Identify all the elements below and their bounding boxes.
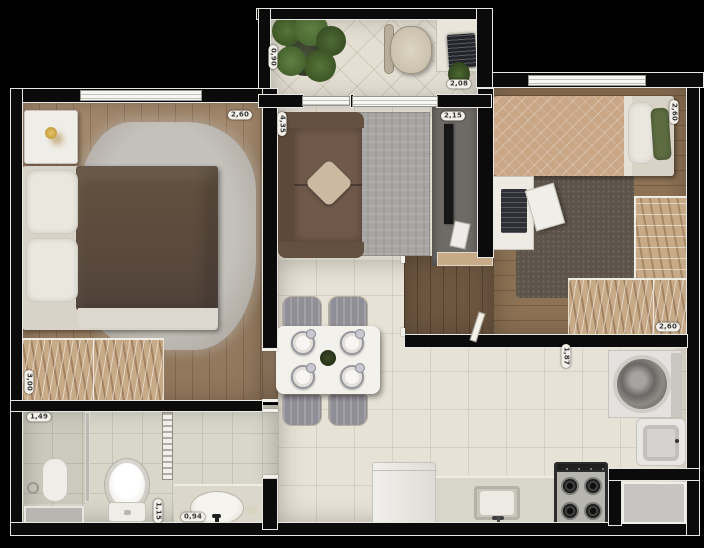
wall-vanity-right — [262, 478, 278, 530]
place-setting — [340, 365, 364, 389]
entry-landing — [622, 482, 686, 524]
dim-vanity-width: 0,94 — [181, 513, 205, 522]
dim-bedroom2-length: 2,60 — [670, 100, 679, 124]
burner — [584, 477, 602, 495]
wall-bathroom-top — [10, 400, 263, 412]
kitchen-counter — [436, 476, 556, 526]
living-window — [302, 96, 350, 106]
bedroom1-door-frame — [262, 348, 278, 351]
refrigerator — [372, 462, 436, 528]
wall-bedroom1-right — [262, 88, 278, 350]
nightstand — [24, 110, 78, 164]
bedroom2-window — [528, 75, 646, 86]
tv-panel — [432, 104, 478, 266]
dim-bedroom1-length: 3,00 — [25, 370, 34, 394]
kitchen-sink — [474, 486, 520, 520]
washing-machine — [608, 350, 682, 418]
duvet — [76, 166, 218, 310]
place-setting — [340, 331, 364, 355]
bedroom1-window — [80, 90, 202, 101]
laundry-sink — [636, 418, 686, 466]
sofa-armrest — [278, 112, 364, 128]
shower-partition — [85, 412, 90, 502]
single-bed — [494, 96, 674, 176]
bedroom2-shelf-unit — [634, 196, 688, 282]
washer-drum — [613, 355, 671, 413]
laundry-faucet — [675, 439, 679, 443]
table-centerpiece — [320, 350, 336, 366]
wall-balcony-top — [256, 8, 492, 20]
dining-chair — [328, 296, 368, 328]
flush-button — [124, 510, 131, 515]
shower-fixture — [42, 458, 68, 502]
balcony-sliding-door — [352, 96, 438, 107]
burner — [561, 502, 579, 520]
wall-landing-top — [608, 468, 700, 481]
wall-bedroom2-bottom — [404, 334, 688, 348]
bathroom-door-frame — [263, 475, 278, 478]
dim-living-length: 4,35 — [278, 112, 287, 136]
media-console — [449, 221, 470, 250]
bedroom1-wardrobe — [22, 338, 164, 404]
dim-bedroom1-width: 2,60 — [228, 111, 252, 120]
dim-balcony-depth: 0,90 — [269, 45, 278, 69]
bed-pillow — [26, 170, 78, 234]
bedroom2-desk — [492, 176, 534, 250]
toilet-tank — [108, 502, 146, 522]
wardrobe-divider — [653, 280, 654, 338]
shower-drain — [27, 482, 39, 494]
dining-chair — [282, 394, 322, 426]
sofa — [278, 112, 364, 258]
wardrobe-divider — [93, 340, 94, 406]
wall-outer-left — [10, 88, 23, 536]
dim-living-width: 2,15 — [441, 112, 465, 121]
double-bed — [22, 166, 218, 330]
burner — [561, 477, 579, 495]
bedroom1-door-frame — [262, 399, 278, 402]
soap-dish — [246, 506, 257, 514]
table-lamp — [45, 127, 57, 139]
bathroom-door-frame — [263, 409, 278, 412]
dim-bedroom2-wardrobe-width: 2,60 — [656, 323, 680, 332]
wall-living-bedroom2 — [477, 88, 494, 258]
wall-outer-right — [686, 72, 700, 536]
office-chair — [390, 26, 432, 74]
floor-plan: 2,60 0,90 4,35 2,08 2,15 2,60 3,00 1,49 … — [0, 0, 704, 548]
wall-living-top-a — [258, 94, 304, 108]
dining-chair — [328, 394, 368, 426]
plant-leaves — [276, 46, 306, 76]
stove-controls — [557, 464, 605, 470]
dim-bathroom-width: 1,49 — [27, 413, 51, 422]
wall-living-top-c — [436, 94, 492, 108]
quilted-duvet — [494, 96, 626, 176]
tv — [444, 124, 453, 224]
burner — [584, 502, 602, 520]
bedroom2-door-frame — [401, 328, 405, 336]
dining-chair — [282, 296, 322, 328]
wall-outer-bottom — [10, 522, 700, 536]
stove — [554, 462, 608, 528]
dim-kitchen-width: 1,87 — [562, 344, 571, 368]
desk-monitor — [501, 189, 527, 233]
bedroom2-door-frame — [401, 256, 405, 263]
fridge-door-seam — [373, 470, 437, 471]
sofa-armrest — [278, 242, 364, 258]
laundry-basin — [643, 425, 679, 461]
plant-leaves — [304, 50, 336, 82]
dim-toilet-area-width: 1,15 — [154, 499, 163, 523]
dim-home-office-width: 2,08 — [447, 80, 471, 89]
place-setting — [291, 365, 315, 389]
bed-sheet-fold — [78, 308, 218, 328]
wall-office-bedroom2 — [476, 8, 493, 88]
sink-basin — [480, 491, 514, 515]
bed-pillow — [26, 238, 78, 302]
washer-panel — [671, 353, 681, 417]
place-setting — [291, 331, 315, 355]
bathroom-folding-door — [162, 412, 173, 480]
